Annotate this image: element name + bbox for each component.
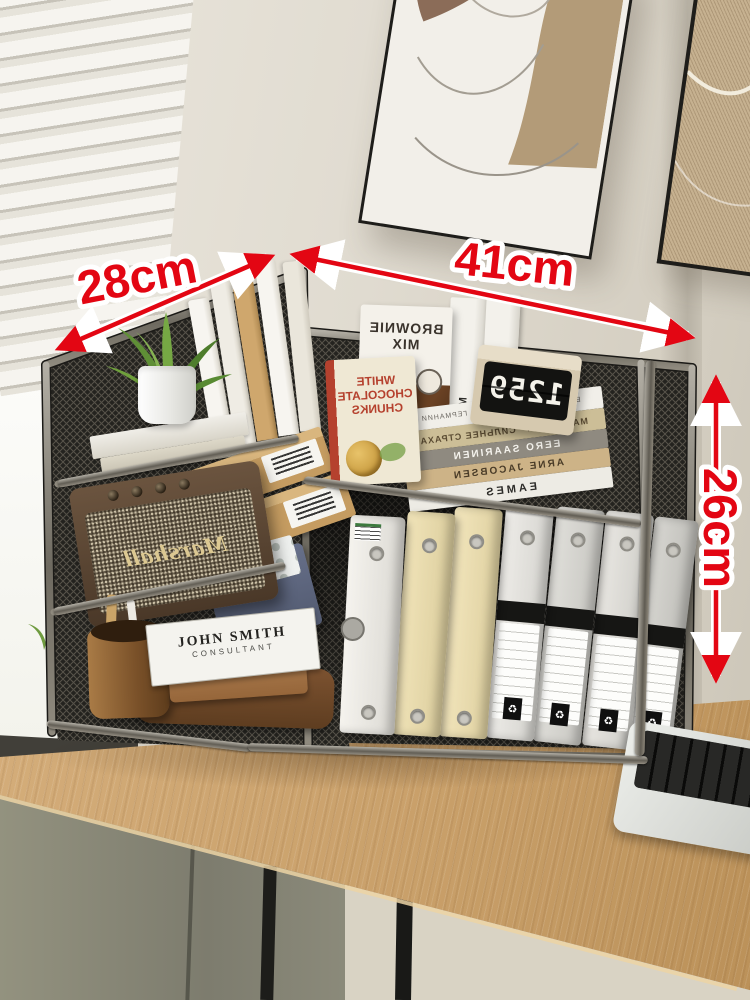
product-photo-scene: MIX MIX BROWNIE MIX WHITE CHOCOLATE CHUN… bbox=[0, 0, 750, 1000]
depth-label: 28cm bbox=[73, 239, 201, 314]
height-label: 26cm bbox=[694, 468, 747, 588]
width-label: 41cm bbox=[452, 231, 577, 296]
dimension-annotations: 28cm 41cm 26cm bbox=[0, 0, 750, 1000]
